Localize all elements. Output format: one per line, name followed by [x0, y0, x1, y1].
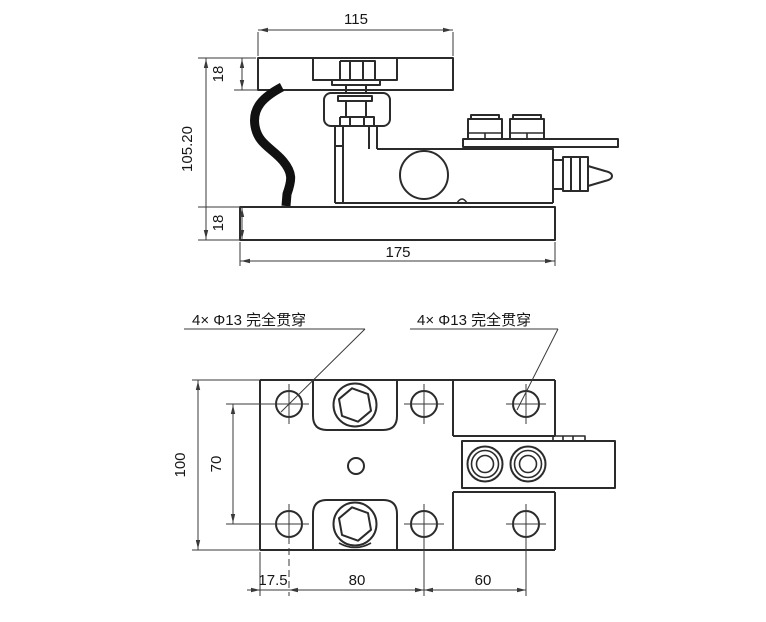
center-hole	[348, 458, 364, 474]
load-cell-body-side	[335, 149, 553, 203]
dim-label-80: 80	[349, 572, 366, 589]
dim-label-18-top: 18	[210, 66, 227, 83]
connector	[553, 157, 612, 191]
callout-right-label: 4× Φ13 完全贯穿	[417, 311, 531, 329]
callout-left: 4× Φ13 完全贯穿	[184, 311, 365, 412]
bolt-washer	[332, 80, 380, 85]
load-button-block	[324, 93, 390, 126]
bottom-plate-side	[240, 207, 555, 240]
dim-label-17-5: 17.5	[258, 572, 287, 589]
dim-bottom-plate-thickness: 18	[198, 207, 244, 240]
bolt-collar	[338, 96, 372, 101]
dim-hole-spacing-vertical: 70	[208, 404, 309, 524]
stand-column	[335, 126, 377, 203]
dim-label-175: 175	[385, 244, 410, 261]
technical-drawing: 115 18 105.20 18 175	[0, 0, 766, 622]
cable	[255, 87, 291, 206]
plan-view: 4× Φ13 完全贯穿 4× Φ13 完全贯穿 100 70	[172, 311, 615, 596]
dim-overall-height: 105.20	[179, 58, 256, 240]
bolt-shank-lower	[346, 101, 366, 117]
dim-label-60: 60	[475, 572, 492, 589]
dim-label-70: 70	[208, 456, 225, 473]
side-view: 115 18 105.20 18 175	[179, 11, 618, 266]
bolt-slot-top	[313, 380, 397, 430]
dim-label-115: 115	[344, 11, 368, 28]
dim-top-plate-width: 115	[258, 11, 453, 56]
dim-bottom-plate-width: 175	[240, 242, 555, 266]
cable-gland-top-view-left	[468, 447, 503, 482]
drawing-canvas: 115 18 105.20 18 175	[0, 0, 766, 622]
dim-label-18-bottom: 18	[210, 215, 227, 232]
mounting-holes	[276, 384, 546, 537]
load-cell-hole	[400, 151, 448, 199]
hex-bolt-bottom	[334, 503, 377, 548]
dim-bottom-row: 17.5 80 60	[247, 537, 526, 596]
cable-gland-top-view-right	[511, 447, 546, 482]
dim-label-100: 100	[172, 452, 189, 477]
callout-left-label: 4× Φ13 完全贯穿	[192, 311, 306, 329]
bolt-nut	[340, 117, 374, 126]
dim-label-105-20: 105.20	[179, 126, 196, 172]
gland-plate-side	[463, 139, 618, 147]
bolt-head	[340, 61, 375, 80]
cable-gland-left	[468, 115, 502, 139]
cable-gland-right	[510, 115, 544, 139]
dim-top-plate-thickness: 18	[210, 58, 258, 90]
hex-bolt-top	[334, 384, 377, 427]
